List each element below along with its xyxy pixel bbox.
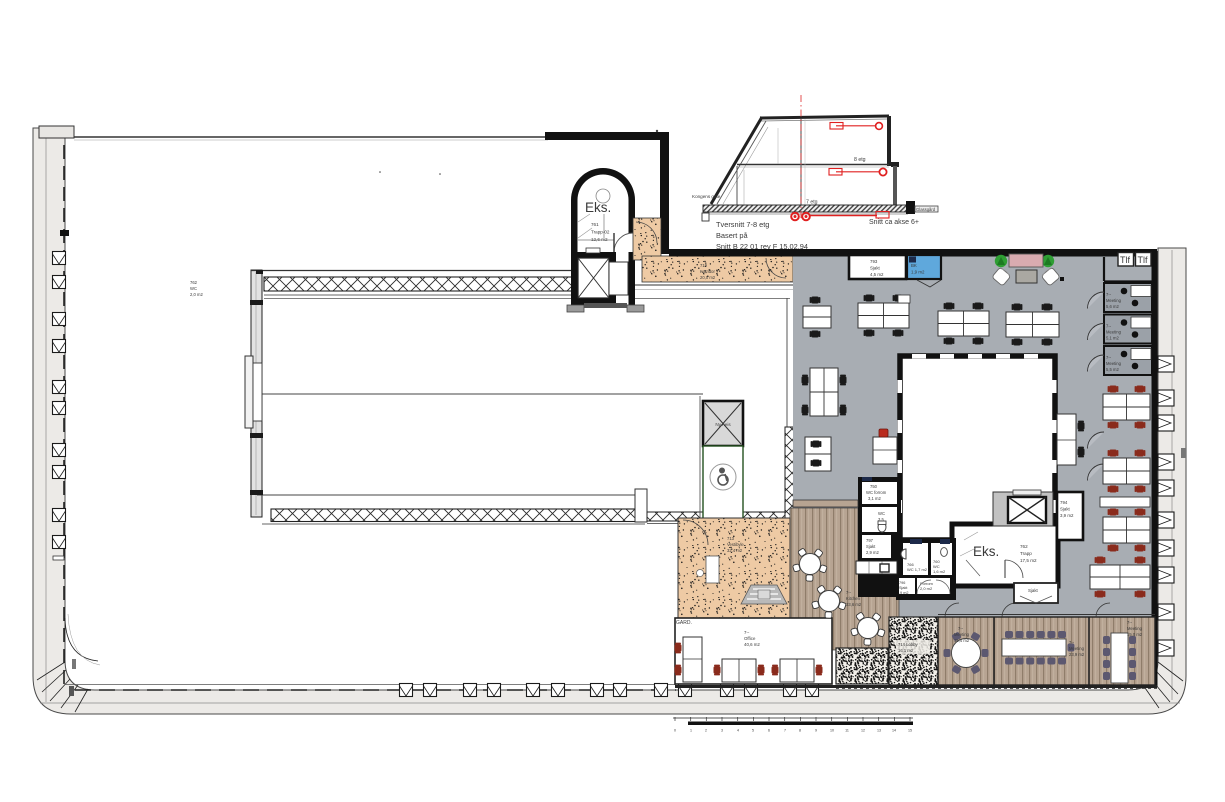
svg-text:Tlf: Tlf: [1120, 255, 1130, 265]
svg-text:10: 10: [830, 729, 834, 733]
svg-text:1,6 m2: 1,6 m2: [933, 569, 946, 574]
svg-text:4,5 m2: 4,5 m2: [870, 272, 884, 277]
svg-text:16,1 m2: 16,1 m2: [898, 648, 914, 653]
svg-text:7: 7: [784, 729, 786, 733]
svg-text:Meeting: Meeting: [954, 632, 970, 637]
svg-text:33,6 m2: 33,6 m2: [846, 602, 862, 607]
svg-text:7--: 7--: [1106, 292, 1112, 297]
svg-text:Tversnitt 7-8 etg: Tversnitt 7-8 etg: [716, 220, 769, 229]
svg-text:2: 2: [705, 729, 707, 733]
svg-text:Vestibyle: Vestibyle: [727, 542, 744, 547]
svg-text:1: 1: [690, 729, 692, 733]
svg-text:Meeting: Meeting: [1106, 298, 1122, 303]
svg-text:11: 11: [845, 729, 849, 733]
svg-text:14: 14: [892, 729, 896, 733]
svg-text:2,9 m2: 2,9 m2: [866, 550, 879, 555]
svg-text:5,6 m2: 5,6 m2: [1106, 304, 1119, 309]
svg-text:5,1 m2: 5,1 m2: [1106, 336, 1119, 341]
svg-text:Basert på: Basert på: [716, 231, 749, 240]
svg-text:15,0 m2: 15,0 m2: [1127, 632, 1143, 637]
svg-text:8: 8: [799, 729, 801, 733]
svg-text:1,9 m2: 1,9 m2: [911, 270, 925, 275]
svg-text:Snitt ca akse 6+: Snitt ca akse 6+: [869, 219, 919, 226]
svg-text:BK: BK: [911, 263, 917, 268]
svg-text:3,9 m2: 3,9 m2: [1060, 513, 1074, 518]
svg-text:Ny heis: Ny heis: [715, 422, 731, 427]
svg-text:20,0 m2: 20,0 m2: [700, 275, 716, 280]
svg-text:794: 794: [1060, 500, 1068, 505]
svg-text:5: 5: [752, 729, 754, 733]
svg-text:7--: 7--: [1106, 355, 1112, 360]
svg-text:714 Lobby: 714 Lobby: [898, 642, 918, 647]
svg-text:WC: WC: [878, 511, 885, 516]
svg-text:Office: Office: [744, 636, 756, 641]
svg-text:5,5 m2: 5,5 m2: [1106, 367, 1119, 372]
svg-text:2,0 m2: 2,0 m2: [190, 292, 203, 297]
svg-text:Sjakt: Sjakt: [899, 586, 908, 590]
svg-text:7--: 7--: [1106, 324, 1112, 329]
svg-text:9: 9: [815, 729, 817, 733]
svg-text:793: 793: [870, 259, 878, 264]
svg-text:WC forrom: WC forrom: [866, 490, 887, 495]
svg-text:17,5 m2: 17,5 m2: [1020, 558, 1037, 563]
svg-text:Sjakt: Sjakt: [870, 266, 881, 271]
svg-text:797: 797: [866, 538, 874, 543]
svg-text:7 etg: 7 etg: [806, 200, 818, 206]
svg-text:,9 m2: ,9 m2: [899, 591, 909, 595]
svg-text:Glassgård: Glassgård: [916, 207, 936, 212]
svg-text:Meeting: Meeting: [1069, 646, 1085, 651]
svg-text:7--: 7--: [958, 626, 964, 631]
svg-text:32,4 m2: 32,4 m2: [727, 548, 743, 553]
svg-text:Korridor: Korridor: [700, 269, 715, 274]
svg-text:6: 6: [768, 729, 770, 733]
svg-text:Eks.: Eks.: [973, 544, 999, 559]
svg-text:7--: 7--: [846, 590, 852, 595]
svg-text:WC 1,7 m2: WC 1,7 m2: [907, 567, 928, 572]
svg-text:GARD.: GARD.: [676, 620, 692, 626]
svg-text:0: 0: [674, 729, 676, 733]
svg-text:713: 713: [727, 536, 735, 541]
svg-text:796: 796: [899, 581, 905, 585]
svg-text:762: 762: [1020, 544, 1028, 549]
svg-text:12,6 m2: 12,6 m2: [591, 237, 608, 242]
svg-text:Sjakt: Sjakt: [1060, 507, 1071, 512]
svg-text:Sjakt: Sjakt: [1028, 588, 1039, 593]
svg-text:3: 3: [721, 729, 723, 733]
svg-text:WC: WC: [190, 286, 197, 291]
svg-text:Kongens gate: Kongens gate: [692, 194, 721, 199]
svg-text:Tlf: Tlf: [1138, 255, 1148, 265]
svg-text:Trapp: Trapp: [1020, 551, 1032, 556]
svg-text:40,6 m2: 40,6 m2: [744, 642, 760, 647]
svg-text:12: 12: [861, 729, 865, 733]
svg-text:719: 719: [700, 263, 708, 268]
svg-text:7--: 7--: [1127, 620, 1133, 625]
svg-text:8 etg: 8 etg: [854, 157, 866, 163]
svg-text:Meeting: Meeting: [1106, 330, 1122, 335]
svg-text:Meeting: Meeting: [1106, 361, 1122, 366]
svg-text:762: 762: [190, 280, 198, 285]
svg-text:7--: 7--: [744, 630, 750, 635]
svg-text:2,0 m2: 2,0 m2: [920, 586, 933, 591]
svg-text:761: 761: [591, 222, 599, 227]
svg-text:Sjakt: Sjakt: [866, 544, 876, 549]
svg-text:3,1 m2: 3,1 m2: [868, 496, 881, 501]
svg-text:Eks.: Eks.: [585, 200, 611, 215]
svg-text:15,4 m2: 15,4 m2: [954, 638, 970, 643]
svg-text:750: 750: [870, 484, 878, 489]
svg-text:4: 4: [737, 729, 739, 733]
svg-text:13: 13: [877, 729, 881, 733]
svg-text:Meeting: Meeting: [1127, 626, 1143, 631]
svg-text:23,9 m2: 23,9 m2: [1069, 652, 1085, 657]
svg-text:7--: 7--: [1069, 640, 1075, 645]
svg-text:15: 15: [908, 729, 912, 733]
svg-text:Kitchen: Kitchen: [846, 596, 861, 601]
svg-text:Trapp-02: Trapp-02: [591, 230, 610, 235]
